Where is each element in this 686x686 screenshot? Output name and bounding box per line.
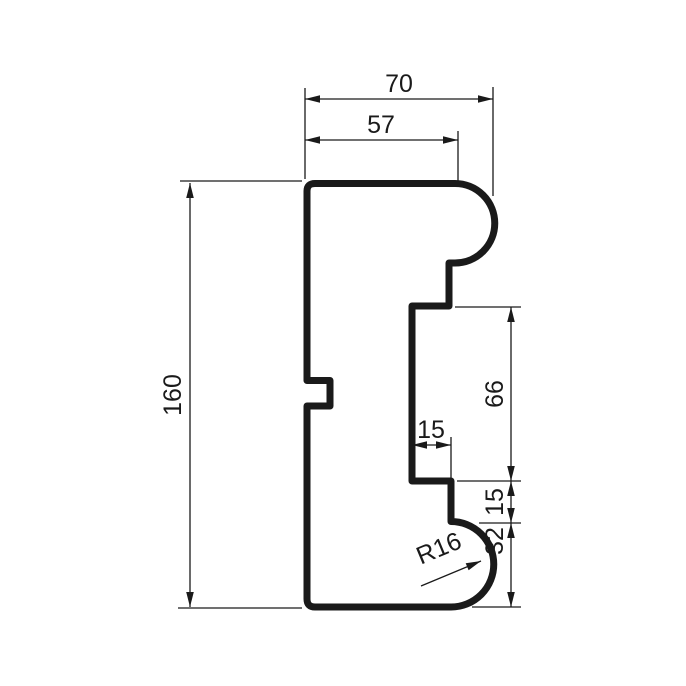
dim-66-label: 66 — [481, 380, 509, 408]
drawing-background — [0, 0, 686, 686]
molding-profile-drawing: 705716066151532R16 — [0, 0, 686, 686]
dim-32-label: 32 — [481, 527, 509, 555]
dim-15-width-label: 15 — [417, 416, 445, 444]
dim-70-label: 70 — [385, 70, 413, 98]
dim-160-label: 160 — [159, 374, 187, 416]
dim-15-height-label: 15 — [481, 488, 509, 516]
dim-57-label: 57 — [367, 111, 395, 139]
technical-drawing-canvas: 705716066151532R16 — [0, 0, 686, 686]
